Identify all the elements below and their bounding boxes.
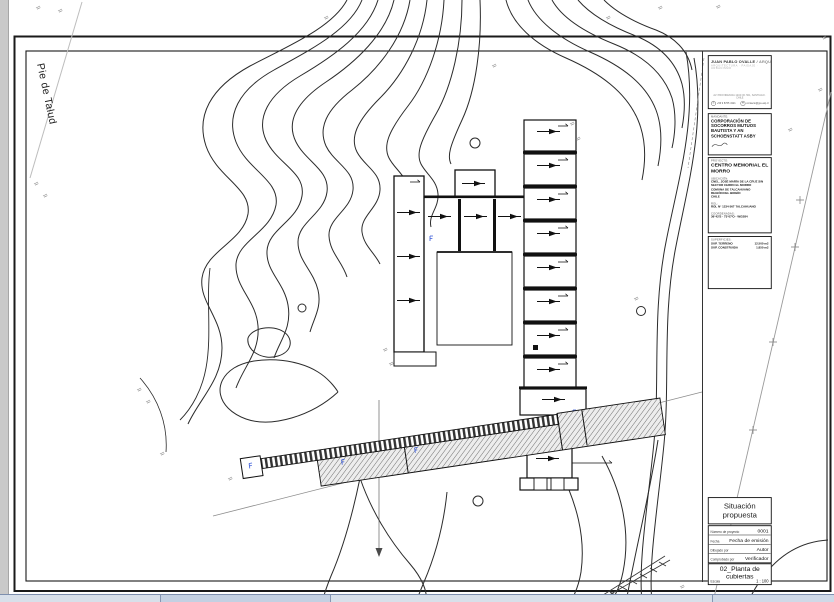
phone-contact: ✆ +56 9 8765 4321: [711, 101, 736, 106]
statusbar-segment: [713, 595, 834, 602]
area-name: SUP. CONSTRUIDA: [711, 246, 738, 249]
titleblock-areas-box: SUPERFICIES: SUP. TERRENO 12.500 m2 SUP.…: [708, 236, 772, 289]
coordinates-value: 36°42'S · 73°07'O · WGS84: [711, 215, 769, 219]
left-wing: [394, 176, 436, 366]
area-value: 1.850 m2: [756, 246, 768, 249]
project-name: CENTRO MEMORIAL EL MORRO: [711, 163, 769, 174]
titleblock-status-box: Situación propuesta: [708, 497, 772, 524]
titleblock-client-box: MANDANTE: CORPORACIÓN DE SOCORROS MUTUOS…: [708, 113, 772, 155]
titleblock-info-rows: Número de proyecto 0001 Fecha Fecha de e…: [708, 525, 772, 563]
area-row: SUP. CONSTRUIDA 1.850 m2: [711, 246, 769, 249]
status-bar: [0, 594, 834, 602]
drawn-by-row: Dibujado por Autor: [709, 545, 771, 554]
architect-address: AV. PROVIDENCIA 1234 OF. 501, SANTIAGO ·…: [711, 94, 769, 99]
architect-title: ARQUITECTO: [759, 59, 772, 64]
middle-band: [424, 196, 524, 353]
area-value: 12.500 m2: [754, 242, 768, 245]
statusbar-segment: [0, 595, 161, 602]
email-icon: ✉: [740, 101, 745, 106]
checked-by-row: Comprobado por Verificador: [709, 554, 771, 563]
drawing-status: Situación propuesta: [709, 502, 771, 520]
project-number-row: Número de proyecto 0001: [709, 526, 771, 535]
date-value: Fecha de emisión: [729, 538, 768, 543]
client-name: CORPORACIÓN DE SOCORROS MUTUOS BAUTISTA …: [711, 119, 769, 139]
titleblock: JUAN PABLO OVALLE / ARQUITECTO ARQUITECT…: [706, 52, 774, 585]
architect-contacts: ✆ +56 9 8765 4321 ✉ contacto@jpo-arq.cl: [711, 101, 769, 106]
drawn-by-value: Autor: [757, 547, 769, 552]
architect-name: JUAN PABLO OVALLE: [711, 59, 755, 64]
checked-by-value: Verificador: [745, 556, 769, 561]
scale-label: Escala: [711, 580, 721, 583]
titleblock-architect-box: JUAN PABLO OVALLE / ARQUITECTO ARQUITECT…: [708, 55, 772, 109]
courtyard: [437, 252, 512, 345]
titleblock-sheet-box: 02_Planta de cubiertas Escala 1 : 100: [708, 563, 772, 585]
areas-label: SUPERFICIES:: [711, 239, 769, 242]
drawn-by-label: Dibujado por: [711, 549, 729, 552]
application-window: Pie de Talud: [0, 0, 834, 602]
phone-number: +56 9 8765 4321: [717, 102, 736, 105]
project-number-label: Número de proyecto: [711, 531, 740, 534]
email-address: contacto@jpo-arq.cl: [746, 102, 768, 105]
window-left-scroll-strip[interactable]: [0, 0, 9, 602]
statusbar-segment: [331, 595, 713, 602]
rol-value: ROL N° 1234-567 TALCAHUANO: [711, 205, 769, 209]
phone-icon: ✆: [711, 101, 716, 106]
talud-slope-line: [30, 2, 82, 178]
signature-mark: [711, 140, 729, 148]
top-center-module: [455, 170, 495, 197]
date-label: Fecha: [711, 540, 720, 543]
area-name: SUP. TERRENO: [711, 242, 733, 245]
access-ramp: [240, 396, 665, 497]
project-number-value: 0001: [757, 529, 768, 534]
date-row: Fecha Fecha de emisión: [709, 535, 771, 544]
checked-by-label: Comprobado por: [711, 558, 735, 561]
architect-logo: JUAN PABLO OVALLE / ARQUITECTO: [711, 59, 769, 64]
sheet-number-title: 02_Planta de cubiertas: [710, 566, 770, 580]
location-line: CHILE: [711, 195, 769, 199]
area-row: SUP. TERRENO 12.500 m2: [711, 242, 769, 245]
statusbar-segment: [161, 595, 331, 602]
titleblock-separator-line: [702, 51, 703, 582]
right-module-column: [519, 120, 587, 415]
email-contact: ✉ contacto@jpo-arq.cl: [740, 101, 768, 106]
titleblock-project-box: PROYECTO: CENTRO MEMORIAL EL MORRO UBICA…: [708, 157, 772, 233]
